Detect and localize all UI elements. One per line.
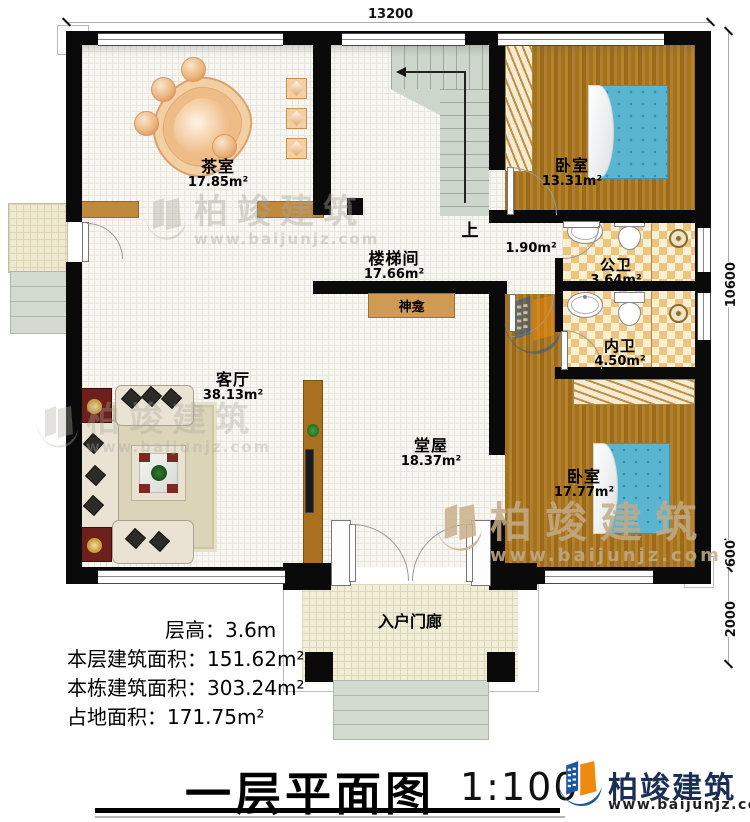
porch-pillar-left — [283, 563, 331, 590]
table-plant — [151, 465, 167, 481]
entry-door-frame-right — [471, 520, 491, 586]
porch-column — [305, 652, 333, 682]
vestibule-area-label: 1.90m² — [496, 241, 566, 256]
dimension-line-top — [66, 22, 711, 23]
table-corner — [167, 453, 178, 462]
tea-stool — [134, 111, 159, 136]
terrace-step — [10, 316, 68, 334]
entry-door-frame-left — [331, 520, 351, 586]
stair-path-line — [464, 71, 466, 203]
dimension-height-porch: 2000 — [722, 601, 741, 637]
sideboard — [77, 201, 139, 218]
window-bedroom-bottom — [545, 570, 653, 584]
sink — [567, 292, 603, 318]
dimension-height-step: 600 — [722, 540, 741, 567]
window-public-bath — [697, 228, 711, 272]
tea-stool — [181, 57, 206, 82]
scale-label: 1:100 — [460, 765, 580, 809]
window-living-room — [98, 570, 285, 584]
porch-step — [333, 724, 489, 740]
tv-screen — [305, 449, 314, 513]
floor-plan-canvas: 13200 10600 600 2000 — [0, 0, 750, 822]
porch-label: 入户门廊 — [345, 608, 475, 632]
wardrobe-bedroom-top — [505, 45, 533, 172]
porch-pillar-right — [489, 563, 537, 590]
tea-stool — [151, 77, 176, 102]
wall-vestibule-bath — [555, 258, 563, 281]
page-title: 一层平面图 — [185, 758, 435, 822]
shower-head — [669, 304, 688, 323]
room-label-main-hall: 堂屋 18.37m² — [381, 437, 481, 470]
tv-wall — [303, 380, 323, 564]
table-corner — [167, 484, 178, 493]
room-label-tea: 茶室 17.85m² — [168, 158, 268, 191]
porch-column — [487, 652, 515, 682]
wall-stair-bedroom — [489, 45, 505, 170]
wall-tea-stair — [313, 45, 331, 215]
table-corner — [139, 453, 150, 462]
room-label-public-bath: 公卫 3.64m² — [576, 257, 656, 289]
shower-head — [669, 229, 688, 248]
stat-footprint-area: 占地面积：171.75m² — [67, 701, 264, 730]
window-bedroom-top — [498, 33, 664, 46]
room-label-living: 客厅 38.13m² — [183, 371, 283, 404]
shrine-label: 神龛 — [398, 296, 424, 315]
room-label-private-bath: 内卫 4.50m² — [580, 338, 660, 370]
stair-path-line — [404, 71, 466, 73]
stat-building-area: 本栋建筑面积：303.24m² — [67, 672, 304, 701]
wall-post — [347, 198, 363, 215]
wall-hall-corridor-lower — [489, 520, 505, 567]
brand-website: www.baijunjz.com — [608, 797, 750, 813]
floor-shading — [82, 45, 695, 56]
coffee-table — [131, 445, 186, 501]
stat-floor-height: 层高：3.6m — [165, 614, 276, 643]
tea-chair — [286, 78, 307, 99]
side-terrace — [8, 203, 68, 273]
wall-corridor-bath — [555, 291, 563, 332]
room-label-bedroom-top: 卧室 13.31m² — [522, 157, 622, 190]
wall-hall-corridor-upper — [489, 294, 505, 455]
stat-floor-area: 本层建筑面积：151.62m² — [67, 643, 304, 672]
room-label-stair-hall: 楼梯间 17.66m² — [344, 250, 444, 283]
tea-stool — [212, 134, 237, 159]
table-corner — [139, 484, 150, 493]
dimension-height-main: 10600 — [722, 262, 741, 307]
tv-wall-plant — [307, 424, 319, 437]
porch-floor — [302, 584, 518, 680]
window-tea-room — [98, 33, 283, 46]
room-label-bedroom-bottom: 卧室 17.77m² — [534, 468, 634, 501]
tea-chair — [286, 108, 307, 129]
wall-left-lower — [66, 262, 82, 584]
dimension-width: 13200 — [366, 7, 415, 22]
wardrobe-bedroom-bottom — [573, 379, 695, 405]
stair-up-label: 上 — [450, 216, 490, 241]
tea-chair — [286, 138, 307, 159]
wall-left-upper — [66, 31, 82, 222]
window-private-bath — [697, 293, 711, 340]
window-stairs — [342, 33, 465, 46]
shrine-cabinet: 神龛 — [368, 293, 455, 318]
